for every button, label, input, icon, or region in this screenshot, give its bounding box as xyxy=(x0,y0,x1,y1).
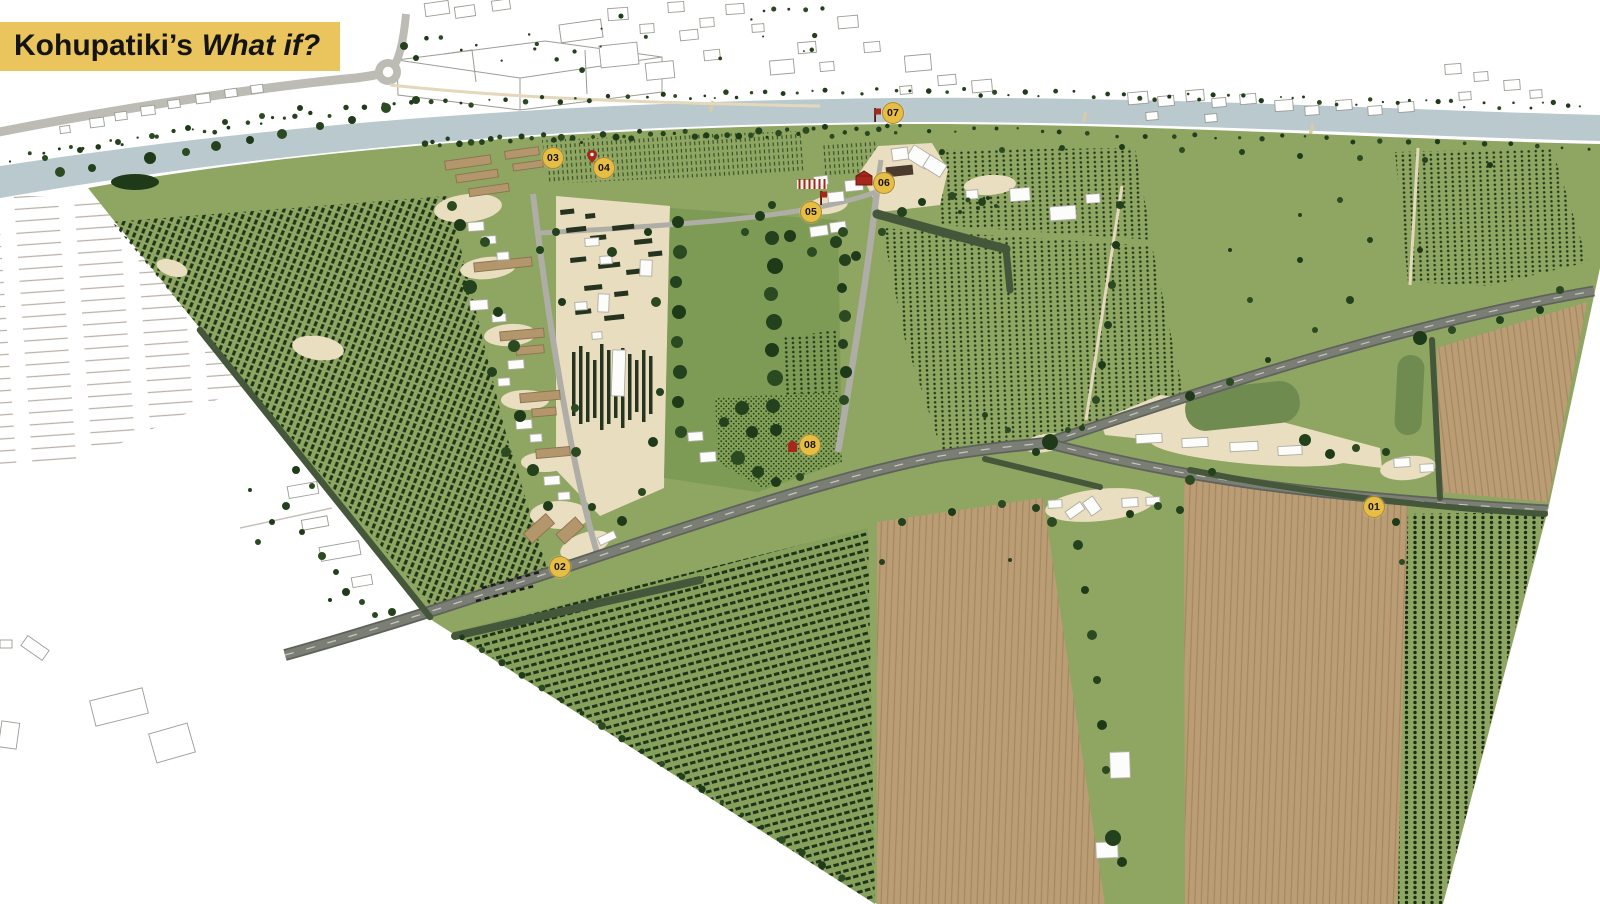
map-marker-05[interactable]: 05 xyxy=(800,201,822,223)
title-banner: Kohupatiki’sWhat if? xyxy=(0,22,340,71)
site-map-illustration xyxy=(0,0,1600,904)
map-marker-02[interactable]: 02 xyxy=(549,556,571,578)
map-marker-07[interactable]: 07 xyxy=(882,102,904,124)
title-emphasis: What if? xyxy=(202,29,320,62)
map-stage: Kohupatiki’sWhat if? 0102030405060708 xyxy=(0,0,1600,904)
map-marker-08[interactable]: 08 xyxy=(799,434,821,456)
riverbank-grove xyxy=(111,174,159,190)
title-text: Kohupatiki’s xyxy=(14,29,193,62)
map-marker-04[interactable]: 04 xyxy=(593,157,615,179)
map-marker-01[interactable]: 01 xyxy=(1363,496,1385,518)
southeast-shelter-rows xyxy=(1398,512,1546,904)
map-marker-06[interactable]: 06 xyxy=(873,172,895,194)
map-marker-03[interactable]: 03 xyxy=(542,147,564,169)
